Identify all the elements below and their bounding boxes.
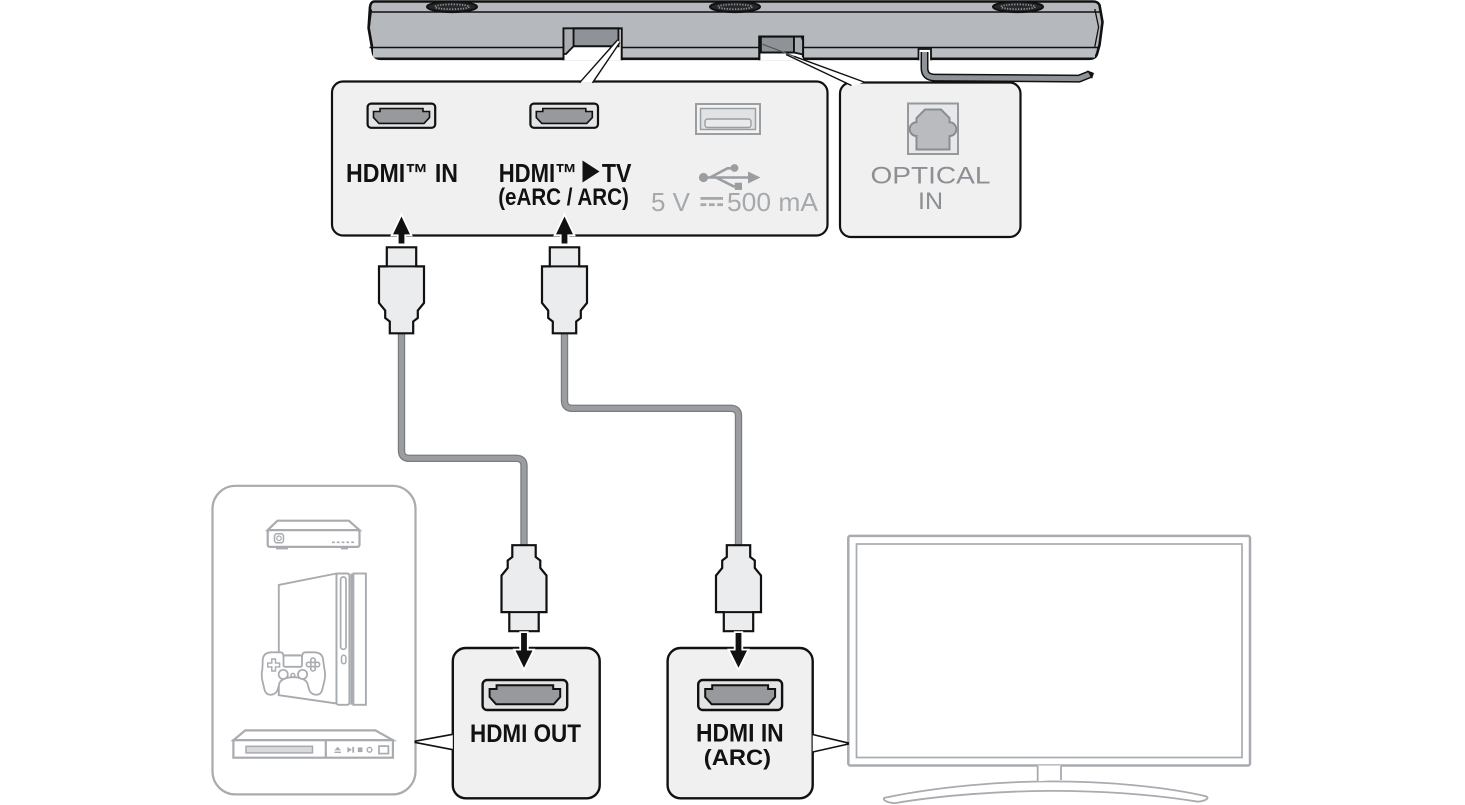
svg-text:HDMI OUT: HDMI OUT xyxy=(470,720,581,748)
svg-text:HDMI IN: HDMI IN xyxy=(696,720,784,748)
svg-text:(eARC / ARC): (eARC / ARC) xyxy=(498,184,629,211)
svg-text:IN: IN xyxy=(918,188,943,215)
svg-text:(ARC): (ARC) xyxy=(704,745,771,770)
svg-text:500 mA: 500 mA xyxy=(727,187,819,217)
svg-text:HDMI™ IN: HDMI™ IN xyxy=(346,158,458,188)
svg-text:5 V: 5 V xyxy=(651,187,691,217)
svg-text:OPTICAL: OPTICAL xyxy=(871,163,991,190)
